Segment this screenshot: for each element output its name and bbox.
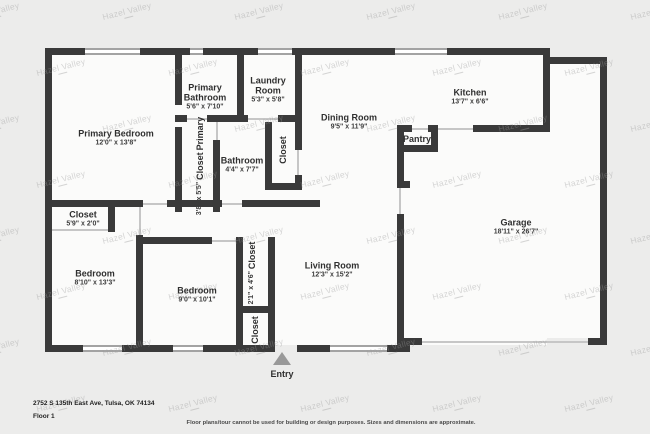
- room-label-primary-bathroom: PrimaryBathroom5'6" x 7'10": [184, 83, 227, 112]
- door-opening: [212, 240, 236, 242]
- watermark-text: Hazel Valley: [629, 224, 650, 248]
- watermark-text: Hazel Valley: [563, 392, 615, 416]
- wall-segment: [543, 57, 607, 64]
- wall-segment: [265, 122, 272, 190]
- wall-segment: [175, 48, 182, 105]
- watermark-text: Hazel Valley: [629, 336, 650, 360]
- room-label-bathroom: Bathroom4'4" x 7'7": [221, 156, 264, 175]
- wall-segment: [397, 214, 404, 352]
- floor-plan: Hazel ValleyHazel ValleyHazel ValleyHaze…: [0, 0, 650, 434]
- room-label-living-room: Living Room12'3" x 15'2": [305, 261, 360, 280]
- wall-segment: [136, 235, 143, 345]
- wall-segment: [297, 345, 330, 352]
- wall-segment: [403, 338, 422, 345]
- wall-segment: [108, 200, 115, 232]
- watermark-text: Hazel Valley: [233, 0, 285, 24]
- window: [395, 48, 447, 55]
- door-opening: [52, 229, 108, 231]
- wall-segment: [237, 48, 244, 115]
- window: [190, 48, 203, 55]
- wall-segment: [397, 145, 438, 152]
- room-label-garage: Garage18'11" x 26'7": [494, 218, 539, 237]
- room-label-kitchen: Kitchen13'7" x 6'6": [451, 88, 488, 107]
- watermark-text: Hazel Valley: [0, 112, 21, 136]
- watermark-text: Hazel Valley: [629, 112, 650, 136]
- wall-segment: [242, 200, 320, 207]
- window: [83, 345, 122, 352]
- wall-segment: [295, 48, 302, 115]
- window: [330, 345, 387, 352]
- room-label-bedroom-middle: Bedroom9'0" x 10'1": [177, 286, 217, 305]
- entry-arrow-icon: [273, 352, 291, 365]
- wall-segment: [175, 115, 187, 122]
- door-opening: [399, 188, 401, 214]
- watermark-text: Hazel Valley: [0, 336, 21, 360]
- room-label-primary-closet: 3'8" x 5'5"ClosetPrimary: [191, 116, 209, 216]
- watermark-text: Hazel Valley: [497, 0, 549, 24]
- door-opening: [139, 207, 141, 235]
- wall-segment: [236, 237, 243, 345]
- wall-segment: [600, 57, 607, 345]
- wall-segment: [473, 125, 550, 132]
- footer-floor-label: Floor 1: [33, 413, 55, 420]
- window: [173, 345, 203, 352]
- entry-label: Entry: [270, 369, 293, 379]
- door-opening: [412, 128, 428, 130]
- wall-segment: [543, 48, 550, 132]
- wall-segment: [207, 115, 248, 122]
- watermark-text: Hazel Valley: [629, 0, 650, 24]
- wall-segment: [243, 306, 268, 313]
- watermark-text: Hazel Valley: [431, 392, 483, 416]
- window: [258, 48, 292, 55]
- wall-segment: [203, 345, 268, 352]
- wall-segment: [122, 345, 173, 352]
- footer-address: 2752 S 135th East Ave, Tulsa, OK 74134: [33, 400, 155, 407]
- wall-segment: [268, 237, 275, 352]
- room-label-closet-hall: Closet5'9" x 2'0": [66, 210, 99, 229]
- door-opening: [216, 122, 218, 140]
- watermark-text: Hazel Valley: [167, 392, 219, 416]
- wall-segment: [397, 125, 412, 132]
- wall-segment: [136, 237, 212, 244]
- wall-segment: [45, 345, 83, 352]
- room-label-primary-bedroom: Primary Bedroom12'0" x 13'8": [78, 129, 154, 148]
- room-label-closet-entry-lower: Closet: [246, 315, 264, 345]
- door-opening: [297, 150, 299, 175]
- wall-segment: [45, 200, 143, 207]
- watermark-text: Hazel Valley: [101, 0, 153, 24]
- watermark-text: Hazel Valley: [0, 224, 21, 248]
- watermark-text: Hazel Valley: [0, 0, 21, 24]
- room-label-laundry-room: LaundryRoom5'3" x 5'8": [250, 76, 286, 105]
- wall-segment: [404, 181, 410, 188]
- room-label-closet-entry-upper: 2'1" x 4'6"Closet: [243, 241, 261, 306]
- watermark-text: Hazel Valley: [365, 0, 417, 24]
- window: [85, 48, 140, 55]
- room-label-bedroom-left: Bedroom8'10" x 13'3": [74, 269, 115, 288]
- watermark-text: Hazel Valley: [299, 392, 351, 416]
- room-label-closet-bathroom: Closet: [274, 135, 292, 165]
- floor-area: [404, 64, 600, 338]
- door-opening: [248, 118, 278, 120]
- wall-segment: [588, 338, 607, 345]
- door-opening: [222, 203, 242, 205]
- footer-disclaimer: Floor plans/tour cannot be used for buil…: [187, 420, 476, 426]
- room-label-pantry: Pantry: [403, 134, 431, 144]
- door-opening: [438, 128, 473, 130]
- door-opening: [422, 341, 588, 343]
- room-label-dining-room: Dining Room9'5" x 11'9": [321, 113, 377, 132]
- wall-segment: [265, 183, 302, 190]
- door-opening: [143, 203, 167, 205]
- wall-segment: [295, 122, 302, 150]
- wall-segment: [278, 115, 302, 122]
